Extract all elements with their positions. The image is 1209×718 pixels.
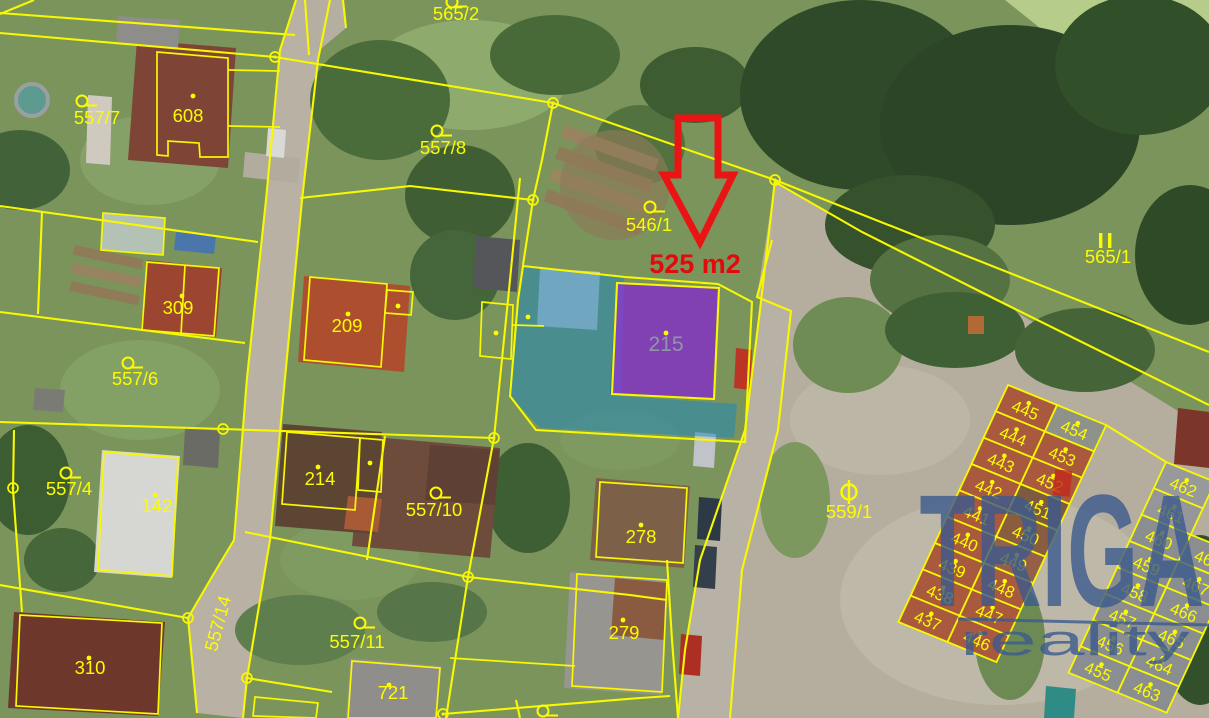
boundary-node-dot [532,199,535,202]
boundary-node-dot [552,102,555,105]
parcel-number-label: 546/1 [626,214,672,235]
cadastre-boundary-line [513,325,544,326]
car [693,432,716,468]
boundary-node-dot [222,428,225,431]
building-dot [396,304,401,309]
building-roof [1174,408,1209,468]
building-dot [191,94,196,99]
car [1044,686,1076,718]
boundary-node-dot [274,56,277,59]
watermark: TRIGA reality [920,461,1209,665]
parcel-number-label: 279 [609,622,640,643]
cadastre-boundary-line [228,126,280,127]
parcel-number-label: 565/2 [433,3,479,24]
parcel-number-label: 557/8 [420,137,466,158]
parcel-number-label: 214 [305,468,336,489]
watermark-sub-text: reality [960,616,1190,665]
parcel-number-label: 309 [163,297,194,318]
boundary-node-dot [187,617,190,620]
boundary-node-dot [246,677,249,680]
parcel-number-label: 608 [173,105,204,126]
parcel-number-label: 721 [378,682,409,703]
parcel-number-label: 209 [332,315,363,336]
building-dot [368,461,373,466]
boundary-node-dot [12,487,15,490]
building-dot [494,331,499,336]
cadastral-map-view: 4454544444534434524424514414504404494394… [0,0,1209,718]
parcel-number-label: 559/1 [826,501,872,522]
building-dot [526,315,531,320]
pool [16,84,48,116]
parcel-number-label: 215 [648,333,683,356]
parcel-number-label: 565/1 [1085,246,1131,267]
parcel-number-label: 557/6 [112,368,158,389]
boundary-node-dot [774,179,777,182]
parcel-number-label: 557/10 [406,499,463,520]
highlight-overlays [508,267,737,438]
parcel-number-label: 142 [142,495,173,516]
parcel-number-label: 278 [626,526,657,547]
boundary-node-dot [442,713,445,716]
parcel-number-label: 557/4 [46,478,92,499]
cadastre-boundary-line [228,70,280,71]
area-size-label: 525 m2 [649,249,741,279]
parcel-number-label: 557/11 [329,631,384,652]
parcel-number-label: 310 [75,657,106,678]
cadastral-map-canvas: 4454544444534434524424514414504404494394… [0,0,1209,718]
watermark-accent-mark [1053,469,1073,497]
boundary-node-dot [493,437,496,440]
parcel-number-label: 557/7 [74,107,120,128]
building-roof [128,40,236,168]
car [266,128,286,158]
boundary-node-dot [467,576,470,579]
